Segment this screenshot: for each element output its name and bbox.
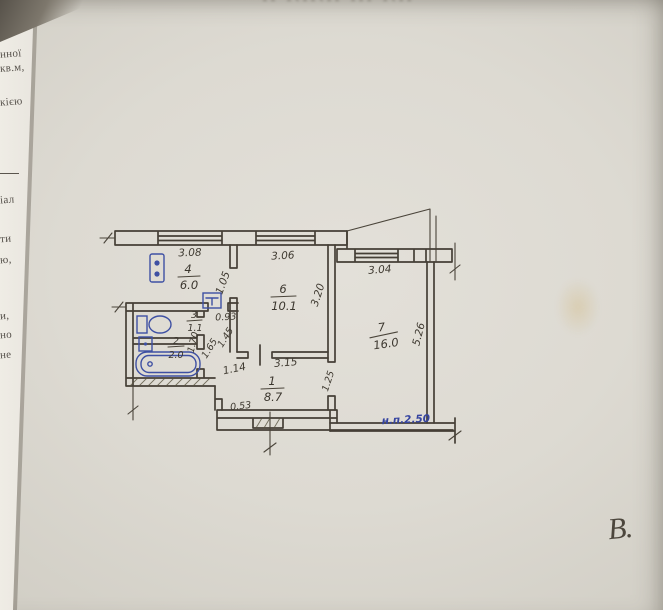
wall-top-kitchen-living [115,231,347,245]
dim-window-kitchen: 3.08 [178,247,202,260]
room-label-kitchen: 4 6.0 [178,262,200,292]
page-fragment: не [0,349,12,362]
dim-bedroom-side: 5.26 [410,321,427,347]
room-label-bath: 2 2.0 [168,336,184,361]
room-number: 4 [184,262,191,276]
room-label-hall: 1 8.7 [261,374,284,404]
kitchen-sink-icon [203,293,221,308]
page-fragment: кією [0,95,23,109]
wall-right-bedroom [427,262,434,423]
floor-plan-drawing: 4 6.0 6 10.1 7 16.0 3 1.1 2 [0,0,663,610]
room-label-wc: 3 1.1 [187,310,203,334]
page-fragment-rule [0,173,19,174]
dim-hall-top: 0.93 [215,311,237,323]
wall-notch-entry [215,386,222,410]
dim-hall-a: 1.45 [216,326,237,350]
page-fragment: нної [0,47,22,60]
room-area: 2.0 [168,350,183,361]
dim-hall-entry: 1.14 [222,361,247,378]
dim-window-living: 3.06 [271,249,295,262]
page-fragment: іал [0,194,15,207]
toilet-icon [137,316,171,333]
page-fragment: но [0,329,12,342]
gas-stove-icon [150,254,164,282]
room-area: 8.7 [264,390,283,404]
dim-kitchen-side: 1.05 [214,270,233,296]
dim-hall-c: 1.70 [186,331,202,354]
room-number: 7 [377,320,387,335]
page-fragment: и, [0,310,10,323]
dim-living-bottom: 3.15 [274,356,299,370]
height-note: н.п.2.50 [381,413,430,428]
room-label-living: 6 10.1 [271,282,297,313]
room-number: 6 [279,282,286,296]
room-area: 10.1 [271,299,297,313]
page-fragment: кв.м, [0,61,25,75]
dim-window-bedroom: 3.04 [368,263,392,277]
dim-door-bedroom: 1.25 [320,369,337,393]
room-label-bedroom: 7 16.0 [368,318,400,353]
wall-top-bedroom-window [337,231,452,262]
page-fragment: ю, [0,254,12,267]
photo-of-floor-plan-document: , 2-а нної кв.м, кією іал ти ю, и, но не… [0,0,663,610]
dim-living-side: 3.20 [309,282,328,308]
room-area: 6.0 [180,278,198,292]
room-number: 2 [173,336,179,347]
room-number: 3 [191,310,197,321]
room-number: 1 [268,374,275,388]
floor-plan-sheet: ıı ılıılıı ııı ılıı В. [0,0,663,610]
page-fragment: ти [0,233,12,246]
dim-notch: 0.53 [230,400,252,413]
room-area: 16.0 [372,335,399,352]
